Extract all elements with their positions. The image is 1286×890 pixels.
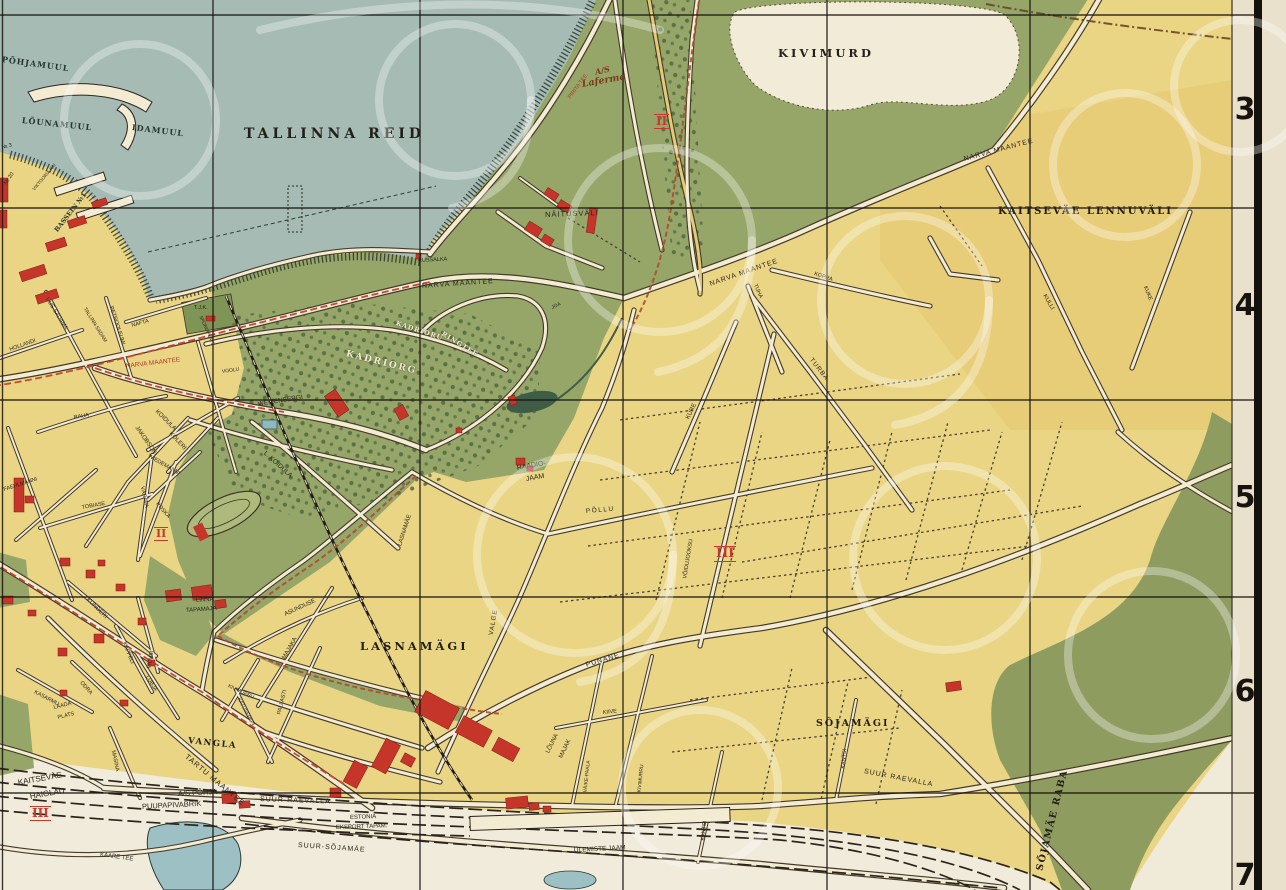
grid-number-3: 3 [1234,92,1256,127]
swan-pond [262,420,277,429]
map-label-tallinna-reid-0: TALLINNA REID [244,127,425,141]
vintage-tallinn-map: TALLINNA REIDKIVIMURDKAITSEVÄE LENNUVÄLI… [0,0,1286,890]
grid-number-7: 7 [1234,858,1256,890]
grid-number-5: 5 [1234,480,1256,515]
grid-number-6: 6 [1234,674,1256,709]
grid-number-4: 4 [1234,288,1256,323]
map-label-kaitsev-e-lennuv-li-2: KAITSEVÄE LENNUVÄLI [998,207,1173,217]
map-label-linna-49: LINNA [196,597,214,604]
map-label-estonia-47: ESTONIA [350,814,376,821]
map-label-n-itusv-li-10: NÄITUSVÄLI [545,209,599,218]
map-label-t-j-k-71: T.J.K. [194,306,208,312]
map-label-kivimurd-1: KIVIMURD [778,48,874,60]
small-pond [544,871,596,889]
ulemiste-pond [147,822,240,890]
map-label-a-s-p-hja-45: A/S PÕHJA [178,788,218,798]
district-numeral-0: II [654,114,669,129]
map-label-s-jam-gi-4: SÕJAMÄGI [816,719,889,729]
district-numeral-3: III [30,806,51,821]
quarry [730,2,1019,110]
map-label-lasnam-gi-3: LASNAMÄGI [360,641,469,653]
district-numeral-2: III [714,546,736,562]
district-numeral-1: II [154,527,168,541]
border-bar [1254,0,1262,890]
